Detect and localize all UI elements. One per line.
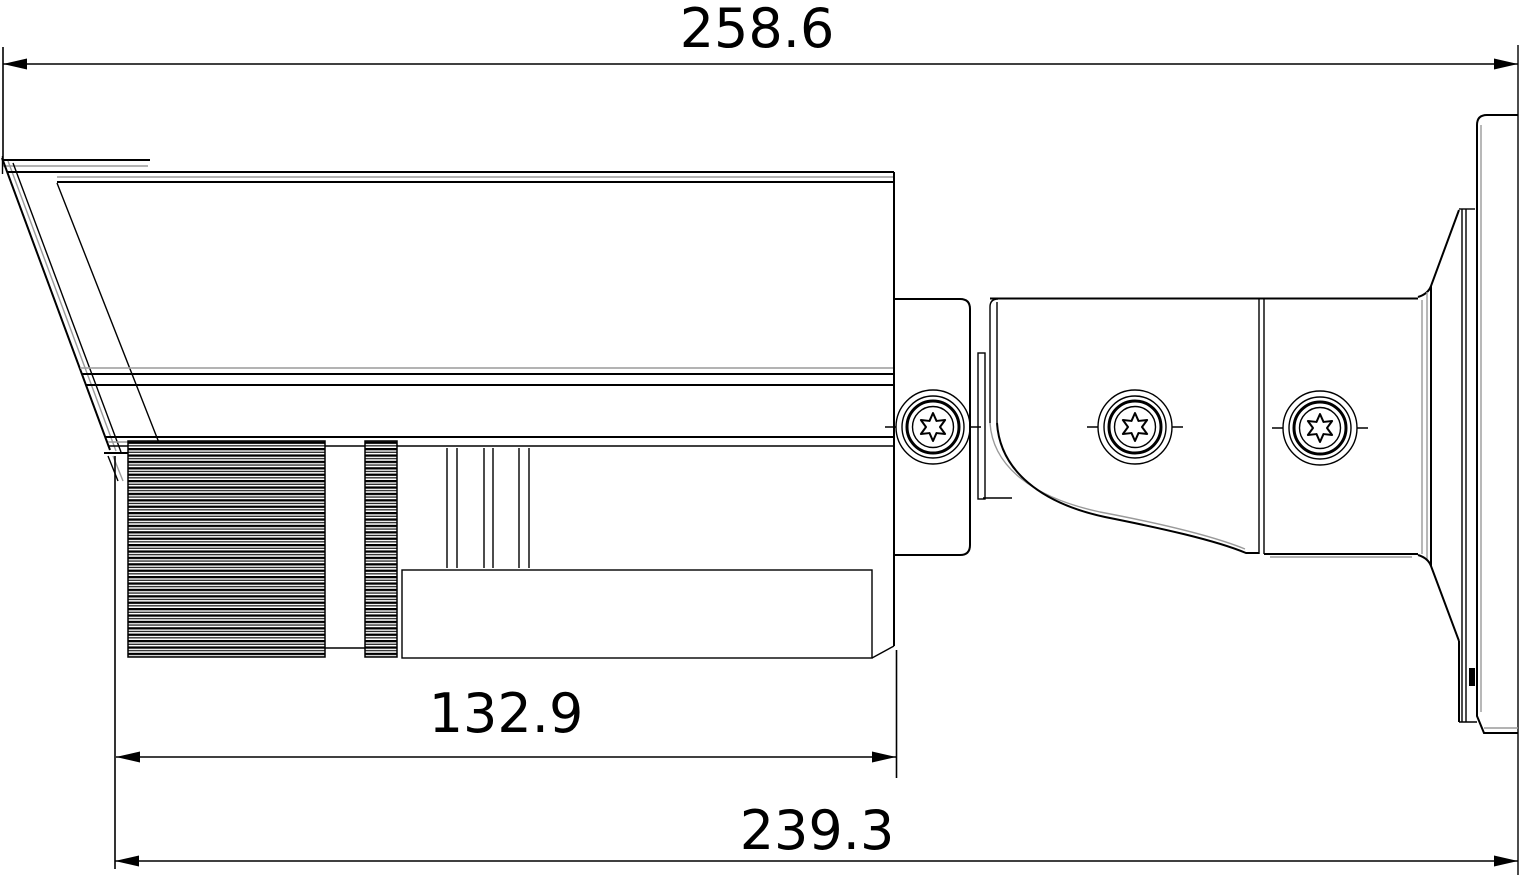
- focus-ring-knurling: [128, 441, 325, 657]
- flange-seam-mark: [1469, 668, 1475, 686]
- zoom-ring-knurling: [365, 441, 397, 657]
- camera-technical-drawing: 258.6 132.9 239.3: [0, 0, 1521, 881]
- dimension-overall-length-label: 258.6: [680, 0, 835, 60]
- dimension-front-section-label: 132.9: [429, 682, 584, 745]
- dimension-body-to-wall-label: 239.3: [740, 799, 895, 862]
